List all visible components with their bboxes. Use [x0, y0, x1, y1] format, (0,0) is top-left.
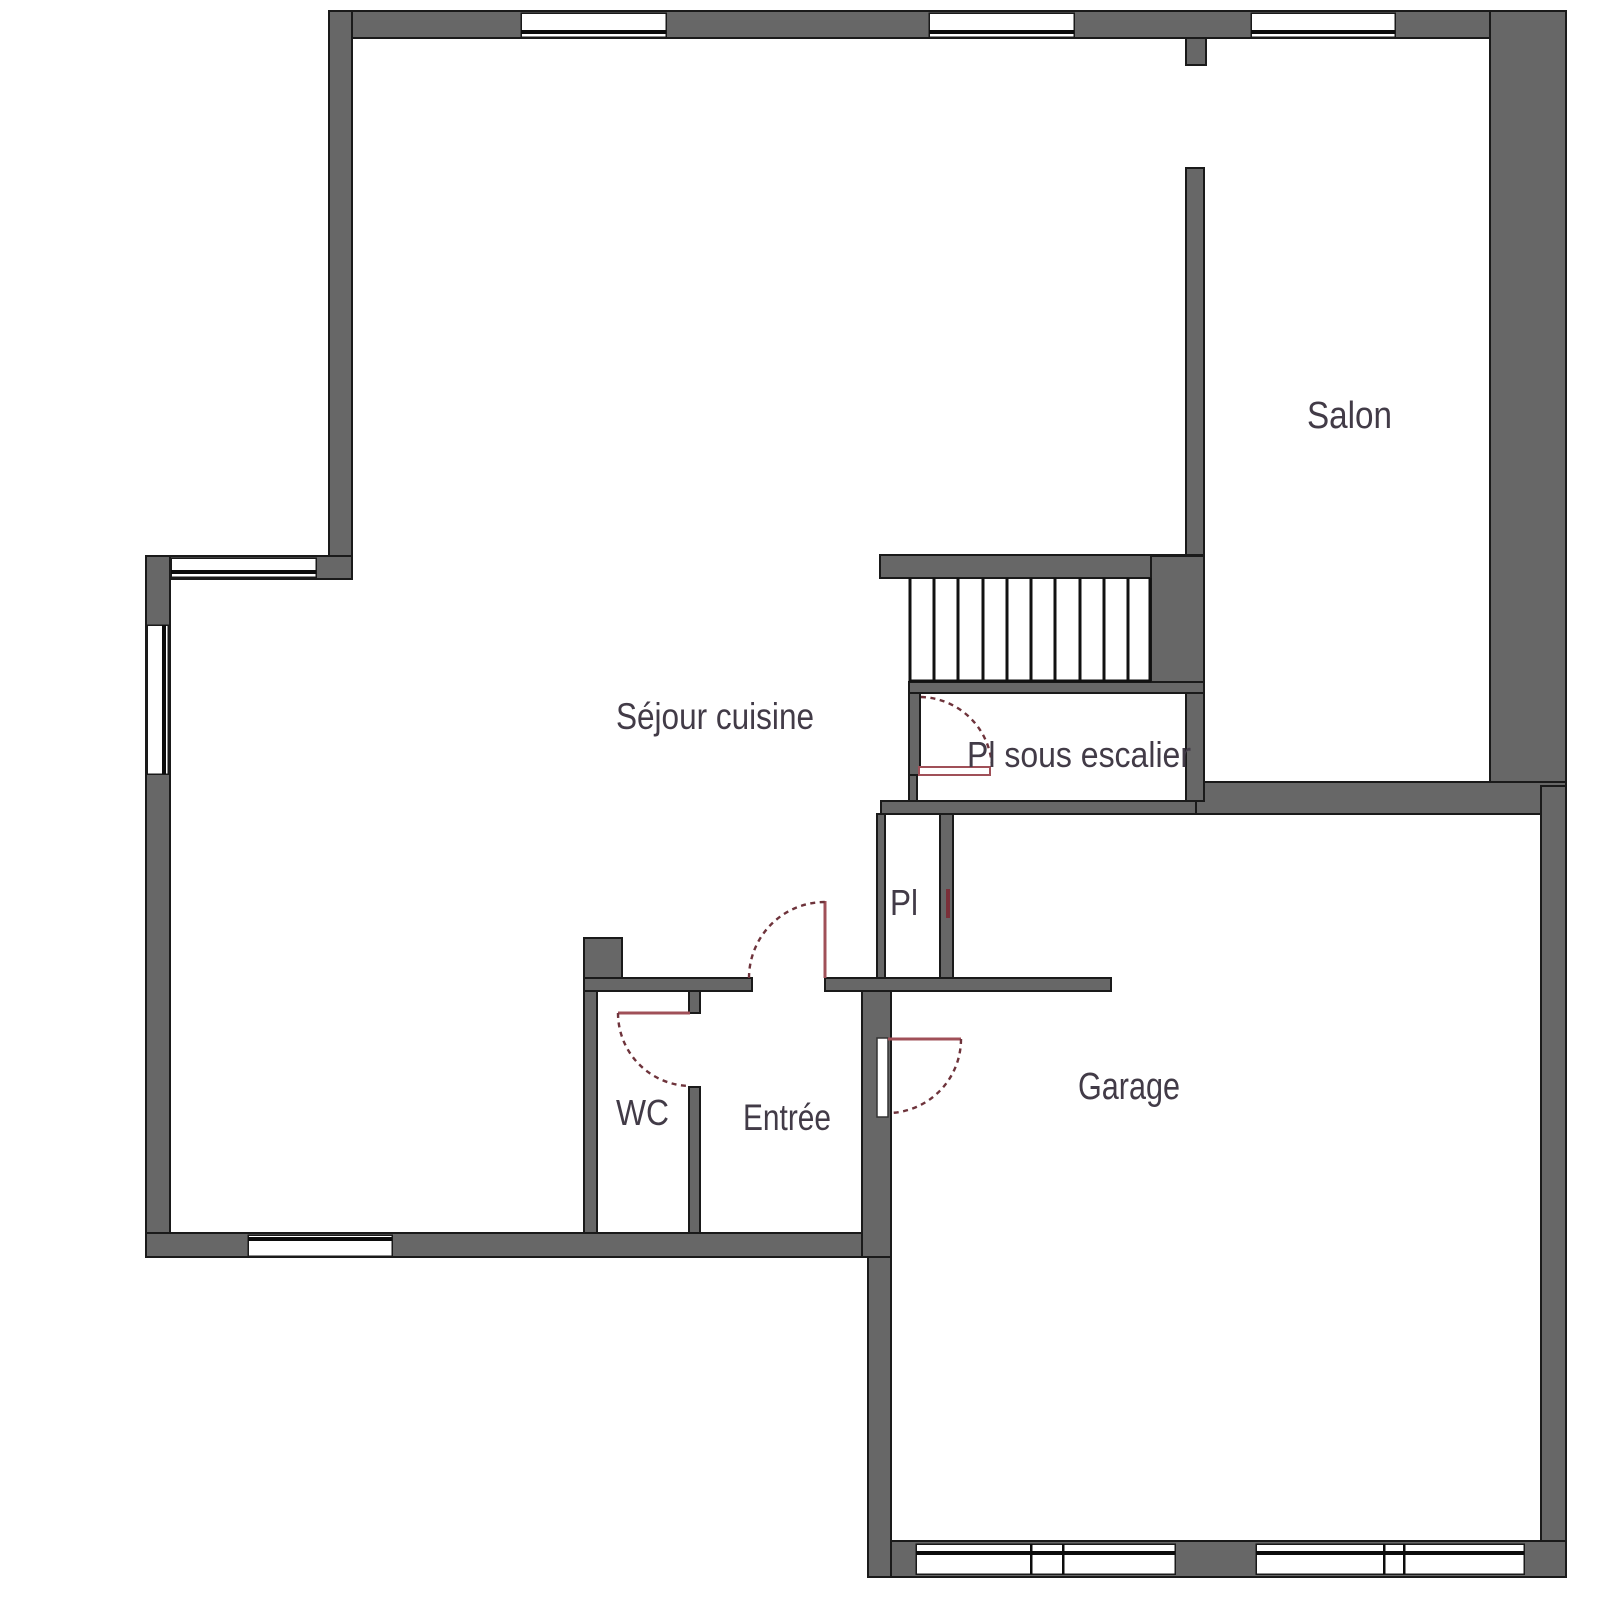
svg-text:Pl: Pl	[890, 882, 918, 923]
svg-text:Entrée: Entrée	[743, 1097, 831, 1138]
svg-text:Salon: Salon	[1307, 395, 1392, 437]
svg-text:WC: WC	[616, 1092, 669, 1133]
svg-text:Pl sous escalier: Pl sous escalier	[967, 734, 1191, 775]
svg-text:Séjour cuisine: Séjour cuisine	[616, 696, 814, 737]
svg-text:Garage: Garage	[1078, 1066, 1180, 1108]
